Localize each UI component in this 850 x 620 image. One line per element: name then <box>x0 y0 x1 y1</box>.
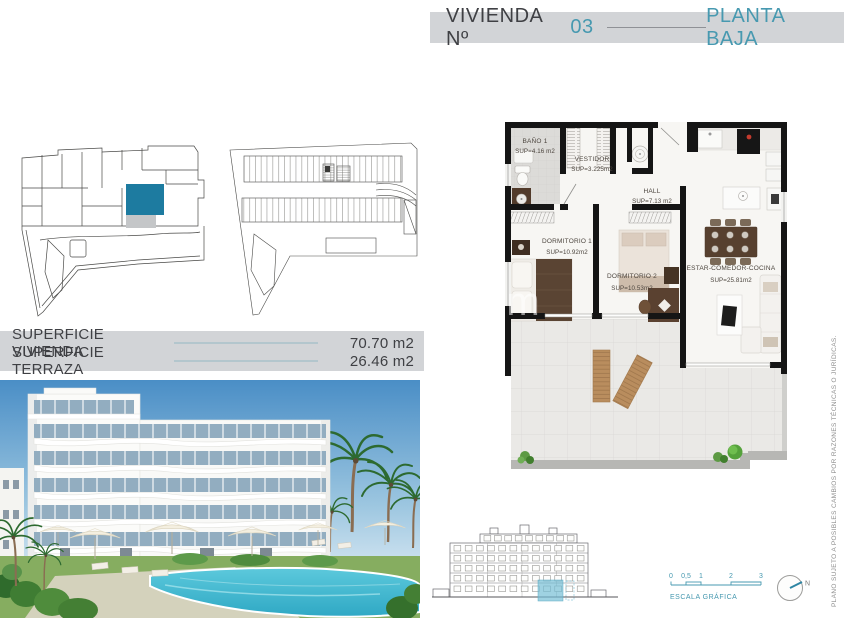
surface-label: SUPERFICIE TERRAZA <box>12 344 174 378</box>
dresser <box>664 267 679 284</box>
surface-value: 70.70 m2 <box>350 335 414 352</box>
room-label-dorm1: DORMITORIO 1 <box>542 238 592 245</box>
north-compass: N <box>773 568 835 612</box>
page-title-prefix: VIVIENDA Nº <box>446 5 563 51</box>
floor-plan: BAÑO 1 SUP=4.16 m2 VESTIDOR SUP=3.225m2 … <box>498 112 790 492</box>
room-area-estar: SUP=25.81m2 <box>710 277 752 284</box>
room-label-vestidor: VESTIDOR <box>575 156 610 163</box>
elevation-drawing <box>430 498 662 616</box>
room-area-bano: SUP=4.16 m2 <box>515 148 555 155</box>
highlighted-unit-fill <box>126 184 164 215</box>
scale-tick-0: 0 <box>669 573 673 580</box>
surface-divider-line <box>174 342 318 344</box>
room-label-dorm2: DORMITORIO 2 <box>607 273 657 280</box>
kitchen-island <box>723 187 760 209</box>
surface-divider-line <box>174 360 318 362</box>
surface-value: 26.46 m2 <box>350 353 414 370</box>
brochure-page: VIVIENDA Nº 03 PLANTA BAJA <box>0 0 850 620</box>
compass-north-label: N <box>805 581 810 588</box>
laundry-machine <box>632 146 648 162</box>
page-header: VIVIENDA Nº 03 PLANTA BAJA <box>430 12 844 43</box>
elevation-highlighted-unit <box>538 580 563 601</box>
room-area-hall: SUP=7.13 m2 <box>632 198 672 205</box>
adjacent-unit-fill <box>126 215 156 228</box>
room-area-dorm2: SUP=10.53m2 <box>611 285 653 292</box>
room-label-bano: BAÑO 1 <box>522 136 547 145</box>
desk-chair <box>639 300 651 314</box>
cooktop-burner <box>747 135 752 140</box>
scale-tick-3: 3 <box>759 573 763 580</box>
room-label-estar: ESTAR-COMEDOR-COCINA <box>687 265 776 272</box>
surface-summary: SUPERFICIE VIVIENDA 70.70 m2 SUPERFICIE … <box>0 331 424 371</box>
dining-table <box>705 219 757 265</box>
room-label-hall: HALL <box>643 188 660 195</box>
scale-tick-05: 0,5 <box>681 573 691 580</box>
room-area-dorm1: SUP=10.92m2 <box>546 249 588 256</box>
surface-row-terraza: SUPERFICIE TERRAZA 26.46 m2 <box>12 352 414 370</box>
cooktop <box>737 129 760 154</box>
unit-number: 03 <box>570 16 593 39</box>
scale-label: ESCALA GRÁFICA <box>670 592 737 601</box>
building-photo <box>0 380 420 618</box>
scale-bar: 0 0,5 1 2 3 ESCALA GRÁFICA <box>658 568 788 608</box>
tv <box>721 305 737 326</box>
scale-tick-2: 2 <box>729 573 733 580</box>
site-plan-garage <box>226 138 424 322</box>
scale-tick-1: 1 <box>699 573 703 580</box>
disclaimer-text: PLANO SUJETO A POSIBLES CAMBIOS POR RAZO… <box>831 371 838 607</box>
room-area-vestidor: SUP=3.225m2 <box>571 166 613 173</box>
toilet-tank <box>515 166 530 173</box>
header-divider-line <box>607 27 706 28</box>
floor-label: PLANTA BAJA <box>706 5 834 51</box>
toilet-bowl <box>517 173 528 186</box>
site-plan-building <box>18 140 223 320</box>
